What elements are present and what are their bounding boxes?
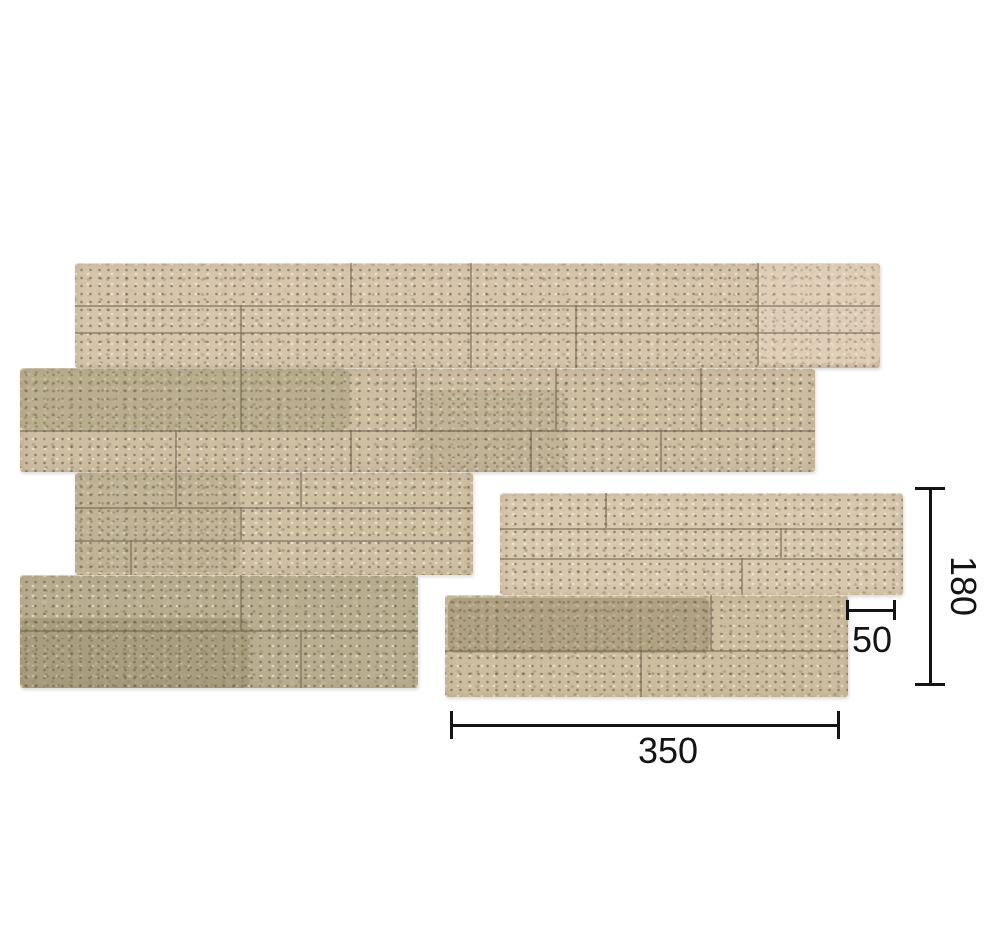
stone-shade-patch (448, 598, 710, 653)
mortar-joint-vertical (605, 493, 607, 528)
mortar-joint-vertical (741, 558, 743, 595)
height-dimension-line (929, 488, 932, 686)
width-dimension-line (452, 724, 840, 727)
width-dimension-cap-left (450, 711, 453, 739)
mortar-joint-horizontal (445, 650, 848, 652)
width-dimension-label: 350 (618, 733, 718, 769)
height-dimension-label: 180 (945, 556, 981, 616)
mortar-joint-vertical (780, 528, 782, 558)
mortar-joint-horizontal (500, 528, 903, 530)
notch-dimension-cap-right (893, 600, 896, 620)
notch-dimension-cap-left (846, 600, 849, 620)
width-dimension-cap-right (837, 711, 840, 739)
product-dimension-image: 180 50 350 (0, 0, 1000, 941)
mortar-joint-vertical (710, 595, 712, 650)
stone-section (500, 493, 903, 595)
mortar-joint-horizontal (500, 558, 903, 560)
height-dimension-cap-top (915, 487, 945, 490)
notch-dimension-label: 50 (847, 622, 897, 658)
height-dimension-cap-bottom (915, 683, 945, 686)
stone-panel-single (0, 0, 1000, 941)
mortar-joint-vertical (640, 650, 642, 697)
notch-dimension-line (848, 609, 895, 612)
